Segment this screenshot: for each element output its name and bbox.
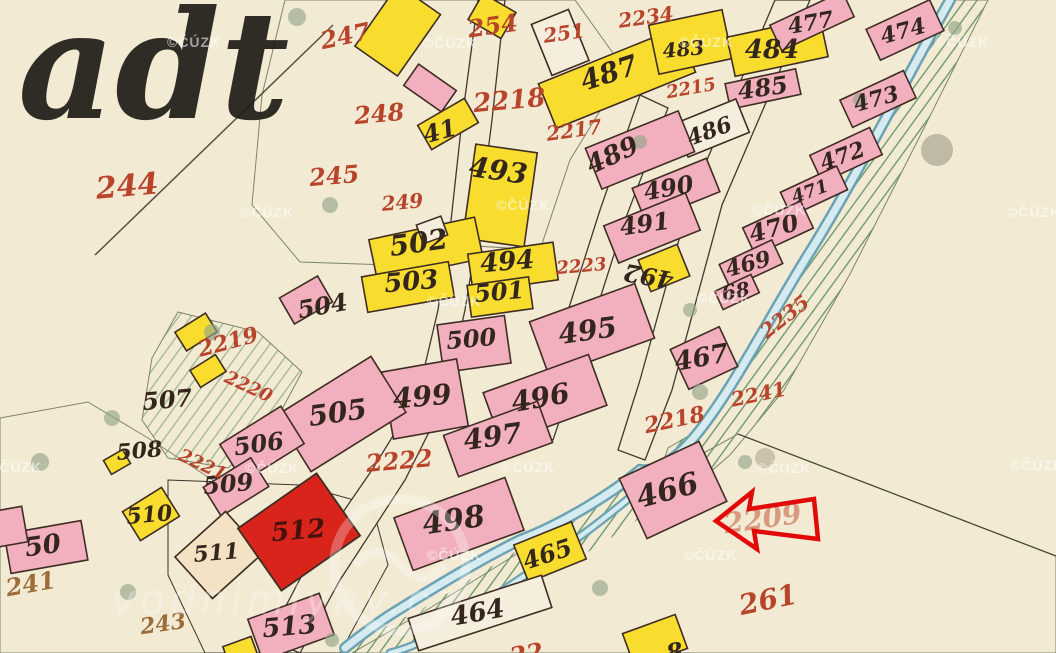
cuzk-watermark: ©ČÚZK xyxy=(697,289,751,306)
cuzk-watermark: ©ČÚZK xyxy=(245,459,299,476)
parcel-label-507: 507 xyxy=(141,383,194,416)
cuzk-watermark: ©ČÚZK xyxy=(427,292,481,309)
cuzk-watermark: ©ČÚZK xyxy=(423,34,477,51)
parcel-label-248: 248 xyxy=(352,97,406,130)
parcel-label-494: 494 xyxy=(479,245,536,280)
cuzk-watermark: ©ČÚZK xyxy=(1007,203,1056,220)
cuzk-watermark: ©ČÚZK xyxy=(501,458,555,475)
cuzk-watermark: ©ČÚZK xyxy=(167,33,221,50)
parcel-label-511: 511 xyxy=(192,538,240,568)
parcel-label-510: 510 xyxy=(125,500,174,530)
cuzk-watermark: ©ČÚZK xyxy=(0,458,42,475)
parcel-label-512: 512 xyxy=(270,514,327,549)
cuzk-watermark: ©ČÚZK xyxy=(752,201,806,218)
map-canvas: adt 414834844854774744734724714704696846… xyxy=(0,0,1056,653)
cuzk-watermark: ©ČÚZK xyxy=(935,33,989,50)
cuzk-watermark: ©ČÚZK xyxy=(683,546,737,563)
cuzk-watermark: ©ČÚZK xyxy=(496,196,550,213)
parcel-label-50: 50 xyxy=(23,529,63,564)
watermark-logo-text: vodnimlyny.cz xyxy=(112,575,463,624)
cuzk-watermark: ©ČÚZK xyxy=(679,33,733,50)
cadastral-map[interactable]: adt 414834844854774744734724714704696846… xyxy=(0,0,1056,653)
place-name-fragment: adt xyxy=(18,0,289,154)
parcel-label-245: 245 xyxy=(307,159,360,192)
parcel-label-2223: 2223 xyxy=(555,254,608,279)
paper-stain xyxy=(921,134,953,166)
cuzk-watermark: ©ČÚZK xyxy=(757,459,811,476)
parcel-label-500: 500 xyxy=(445,322,498,355)
parcel-label-499: 499 xyxy=(392,378,453,416)
parcel-label-249: 249 xyxy=(380,188,425,216)
parcel-label-2218: 2218 xyxy=(471,83,547,119)
parcel-label-244: 244 xyxy=(93,166,159,206)
parcel-label-2222: 2222 xyxy=(364,443,434,478)
cuzk-watermark: ©ČÚZK xyxy=(240,203,294,220)
parcel-label-508: 508 xyxy=(115,436,163,466)
cuzk-watermark: ©ČÚZK xyxy=(1010,456,1056,473)
cuzk-watermark: ©ČÚZK xyxy=(427,546,481,563)
